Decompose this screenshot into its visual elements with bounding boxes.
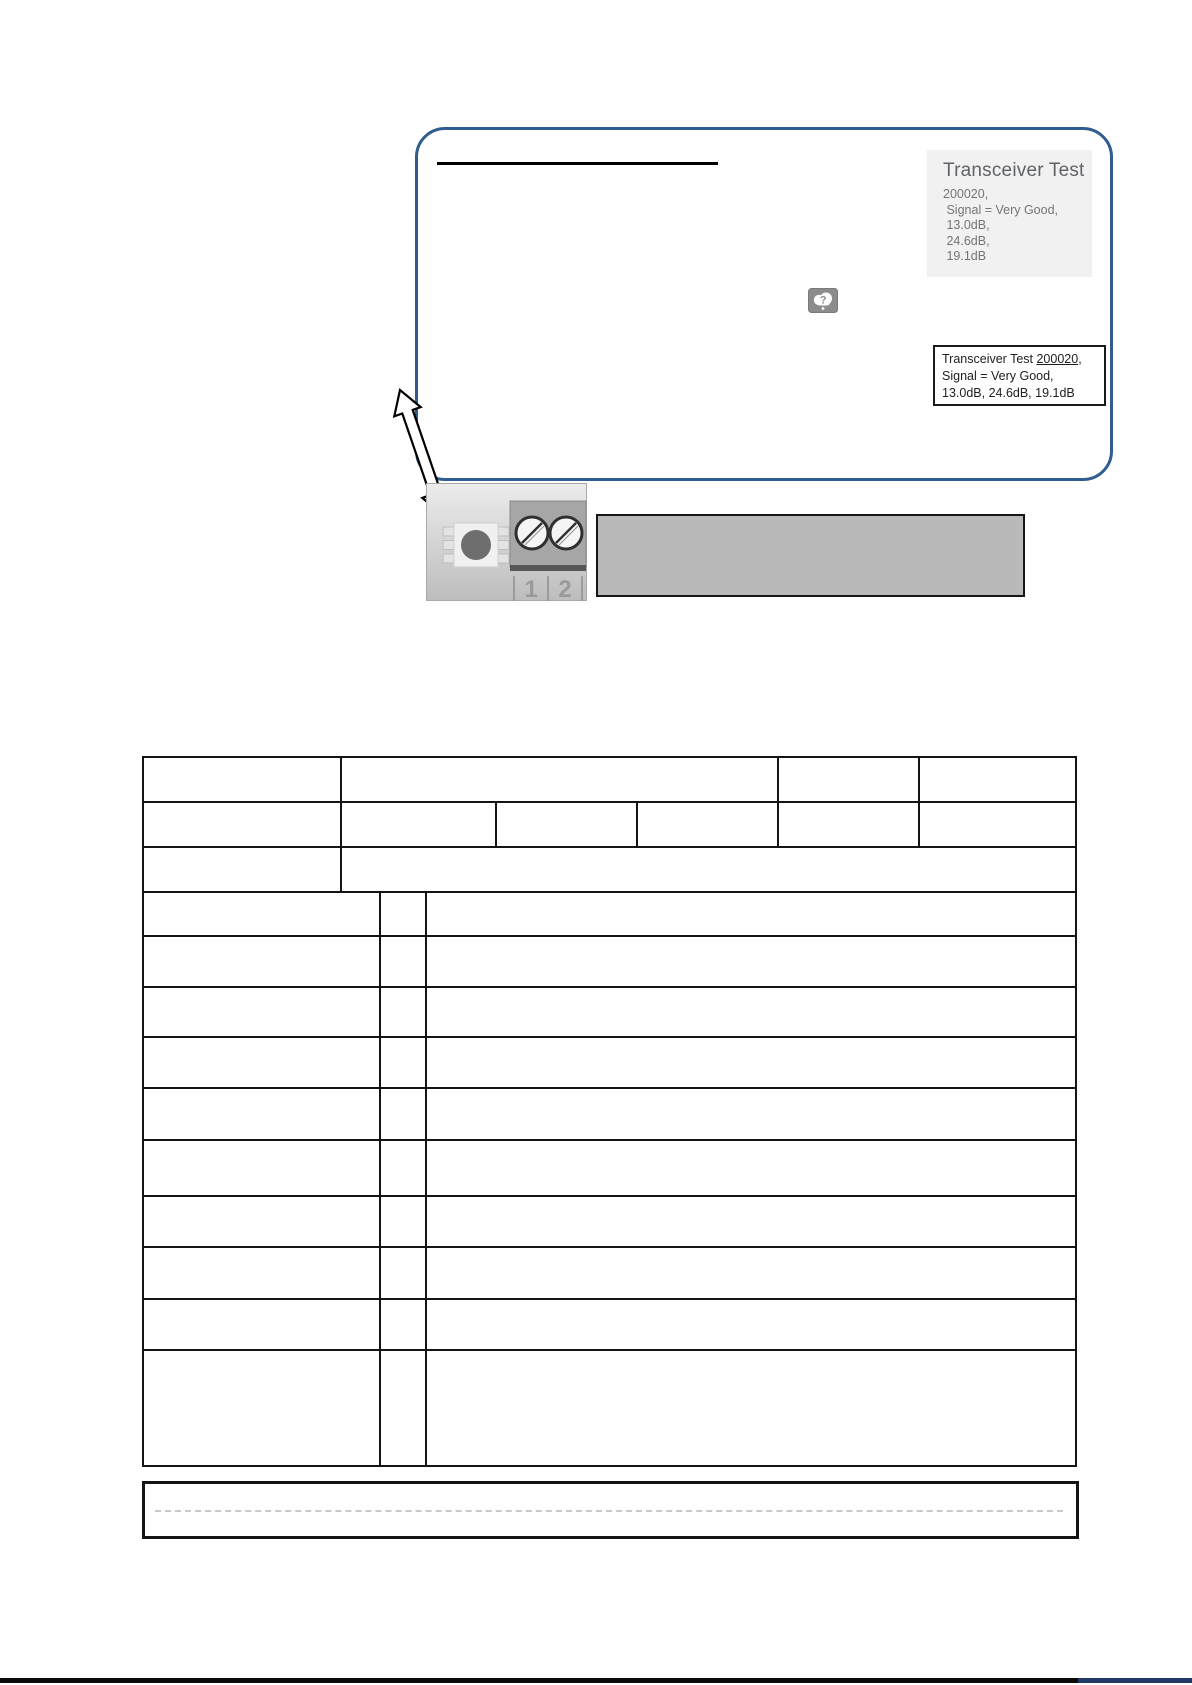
- callout-line-2: Signal = Very Good,: [942, 368, 1097, 385]
- table-cell: [427, 1197, 1075, 1248]
- table-cell: [779, 803, 920, 848]
- table-cell: [427, 1300, 1075, 1351]
- table-cell: [427, 1351, 1075, 1465]
- note-box: [142, 1481, 1079, 1539]
- table-cell: [144, 1300, 381, 1351]
- table-cell: [381, 1197, 427, 1248]
- document-page: Transceiver Test 200020, Signal = Very G…: [0, 0, 1192, 1685]
- table-cell: [381, 893, 427, 937]
- redacted-gray-box: [596, 514, 1025, 597]
- table-cell: [381, 1351, 427, 1465]
- device-id-link[interactable]: 200020: [1036, 352, 1078, 366]
- signal-detail-line: 200020,: [943, 187, 1058, 203]
- table-cell: [144, 937, 381, 988]
- signal-detail-line: 24.6dB,: [943, 234, 1058, 250]
- terminal-label-1: 1: [524, 576, 537, 601]
- table-cell: [144, 803, 342, 848]
- table-cell: [381, 1248, 427, 1300]
- table-cell: [144, 893, 381, 937]
- table-cell: [427, 1248, 1075, 1300]
- table-cell: [497, 803, 638, 848]
- result-callout-box: Transceiver Test 200020, Signal = Very G…: [933, 345, 1106, 406]
- table-cell: [144, 1141, 381, 1197]
- table-cell: [638, 803, 779, 848]
- table-cell: [920, 758, 1075, 803]
- transceiver-test-heading: Transceiver Test: [943, 160, 1085, 182]
- screw-terminal-icon: [510, 501, 586, 571]
- signal-detail-line: 13.0dB,: [943, 218, 1058, 234]
- table-cell: [144, 1089, 381, 1141]
- broken-image-icon: ?: [808, 288, 838, 313]
- table-cell: [427, 893, 1075, 937]
- device-terminal-image: 1 2: [426, 483, 588, 601]
- svg-text:?: ?: [820, 295, 827, 307]
- table-cell: [381, 988, 427, 1038]
- signal-detail-lines: 200020, Signal = Very Good, 13.0dB, 24.6…: [943, 187, 1058, 265]
- table-cell: [381, 1300, 427, 1351]
- callout-line1-prefix: Transceiver Test: [942, 352, 1036, 366]
- table-cell: [144, 1351, 381, 1465]
- table-cell: [381, 1141, 427, 1197]
- table-cell: [342, 848, 1075, 893]
- table-cell: [427, 1038, 1075, 1089]
- table-cell: [427, 1089, 1075, 1141]
- callout-line-1: Transceiver Test 200020,: [942, 351, 1097, 368]
- push-button-icon: [443, 523, 509, 567]
- table-cell: [144, 1038, 381, 1089]
- table-cell: [144, 1248, 381, 1300]
- table-cell: [342, 758, 779, 803]
- table-cell: [779, 758, 920, 803]
- table-cell: [144, 1197, 381, 1248]
- signal-detail-line: 19.1dB: [943, 249, 1058, 265]
- terminal-label-2: 2: [558, 576, 571, 601]
- signal-detail-line: Signal = Very Good,: [943, 203, 1058, 219]
- table-cell: [427, 988, 1075, 1038]
- redacted-heading-underline: [437, 162, 718, 165]
- table-cell: [144, 758, 342, 803]
- screenshot-detail-panel: Transceiver Test 200020, Signal = Very G…: [927, 150, 1092, 277]
- table-cell: [381, 1089, 427, 1141]
- callout-line1-suffix: ,: [1078, 352, 1081, 366]
- table-cell: [342, 803, 497, 848]
- table-cell: [427, 937, 1075, 988]
- callout-line-3: 13.0dB, 24.6dB, 19.1dB: [942, 385, 1097, 402]
- table-cell: [427, 1141, 1075, 1197]
- footer-rule-accent: [1078, 1678, 1192, 1683]
- table-cell: [920, 803, 1075, 848]
- table-cell: [144, 848, 342, 893]
- table-cell: [144, 988, 381, 1038]
- page-footer-rule: [0, 1678, 1192, 1683]
- table-cell: [381, 1038, 427, 1089]
- redacted-text-line: [155, 1510, 1063, 1512]
- table-cell: [381, 937, 427, 988]
- spec-table: [142, 756, 1077, 1467]
